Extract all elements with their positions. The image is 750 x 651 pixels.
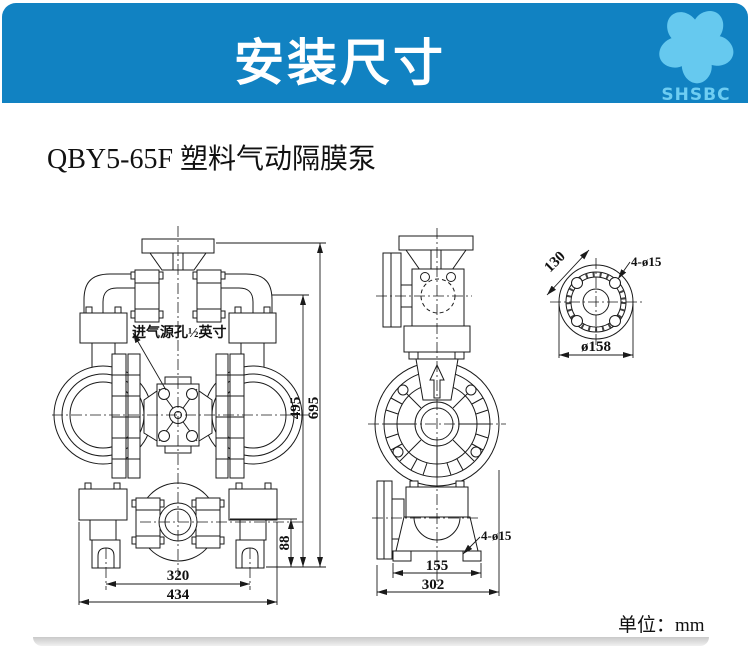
- dim-label-4xd15-flange: 4-ø15: [631, 254, 662, 269]
- dim-label-302: 302: [422, 577, 445, 593]
- dim-label-88: 88: [277, 536, 293, 551]
- dim-label-4xd15-side: 4-ø15: [481, 528, 512, 543]
- dim-label-495: 495: [288, 397, 304, 420]
- page: 安装尺寸 SHSBC QBY5-65F 塑料气动隔膜泵: [0, 0, 750, 651]
- air-inlet-annotation: 进气源孔½英寸: [132, 324, 227, 341]
- front-view-drawing: 进气源孔½英寸 495 695 88 320 434: [52, 226, 326, 605]
- dim-label-130: 130: [542, 249, 569, 276]
- side-view-drawing: 155 302 4-ø15: [368, 228, 512, 596]
- technical-drawing: 进气源孔½英寸 495 695 88 320 434: [0, 0, 750, 651]
- dim-label-434: 434: [167, 587, 190, 603]
- unit-label: 单位：mm: [618, 610, 705, 637]
- dim-label-695: 695: [306, 397, 322, 420]
- page-bottom-shadow: [33, 637, 709, 646]
- flange-top-view-drawing: 130 4-ø15 ø158: [542, 249, 662, 358]
